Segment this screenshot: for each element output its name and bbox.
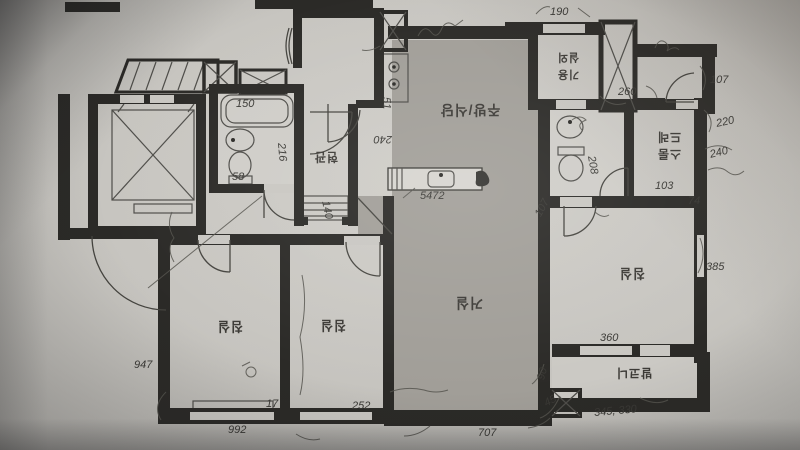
dim-annotation: 360	[600, 332, 619, 344]
dim-annotation: 947	[134, 359, 153, 371]
bathroom1-floor	[209, 84, 304, 192]
bedroom-right-label: 침실	[619, 266, 645, 281]
dim-annotation: 385	[706, 261, 725, 273]
balcony-label: 발코니	[616, 366, 652, 381]
dim-annotation: 992	[228, 424, 246, 436]
bedroom-left-label: 침실	[217, 319, 243, 334]
dim-annotation: 107	[710, 74, 729, 86]
dim-annotation: 103	[655, 180, 674, 192]
floor-plan-drawing: 주방/식당 거실 침실 침실 침실 현관 드레 스룸 실외 기용 발코니 190…	[0, 0, 800, 450]
entrance-label: 현관	[314, 150, 338, 165]
dim-annotation: 58	[232, 171, 245, 183]
dim-annotation: 150	[236, 98, 255, 110]
dim-annotation: 240	[373, 133, 393, 145]
dim-annotation: 252	[351, 400, 370, 412]
utility-label-line2: 기용	[557, 68, 579, 82]
living-label: 거실	[455, 295, 483, 311]
dim-annotation: 216	[275, 141, 289, 162]
dressroom-label-line1: 드레	[657, 130, 681, 145]
dim-annotation: 190	[550, 6, 569, 18]
dim-annotation: 51	[380, 97, 392, 110]
dim-annotation: 74	[688, 195, 700, 207]
dim-annotation: 17	[266, 398, 279, 410]
dim-annotation: 707	[478, 427, 497, 439]
bathroom2-floor	[540, 106, 634, 198]
floor-plan-photo: 주방/식당 거실 침실 침실 침실 현관 드레 스룸 실외 기용 발코니 190…	[0, 0, 800, 450]
kitchen-label: 주방/식당	[440, 102, 500, 118]
bedroom-middle-label: 침실	[320, 318, 346, 333]
utility-label-line1: 실외	[557, 51, 579, 65]
kitchen-counter	[388, 168, 489, 190]
dressroom-label-line2: 스룸	[657, 147, 681, 162]
dim-annotation: 260	[617, 86, 637, 98]
dim-annotation: 5472	[420, 190, 444, 202]
